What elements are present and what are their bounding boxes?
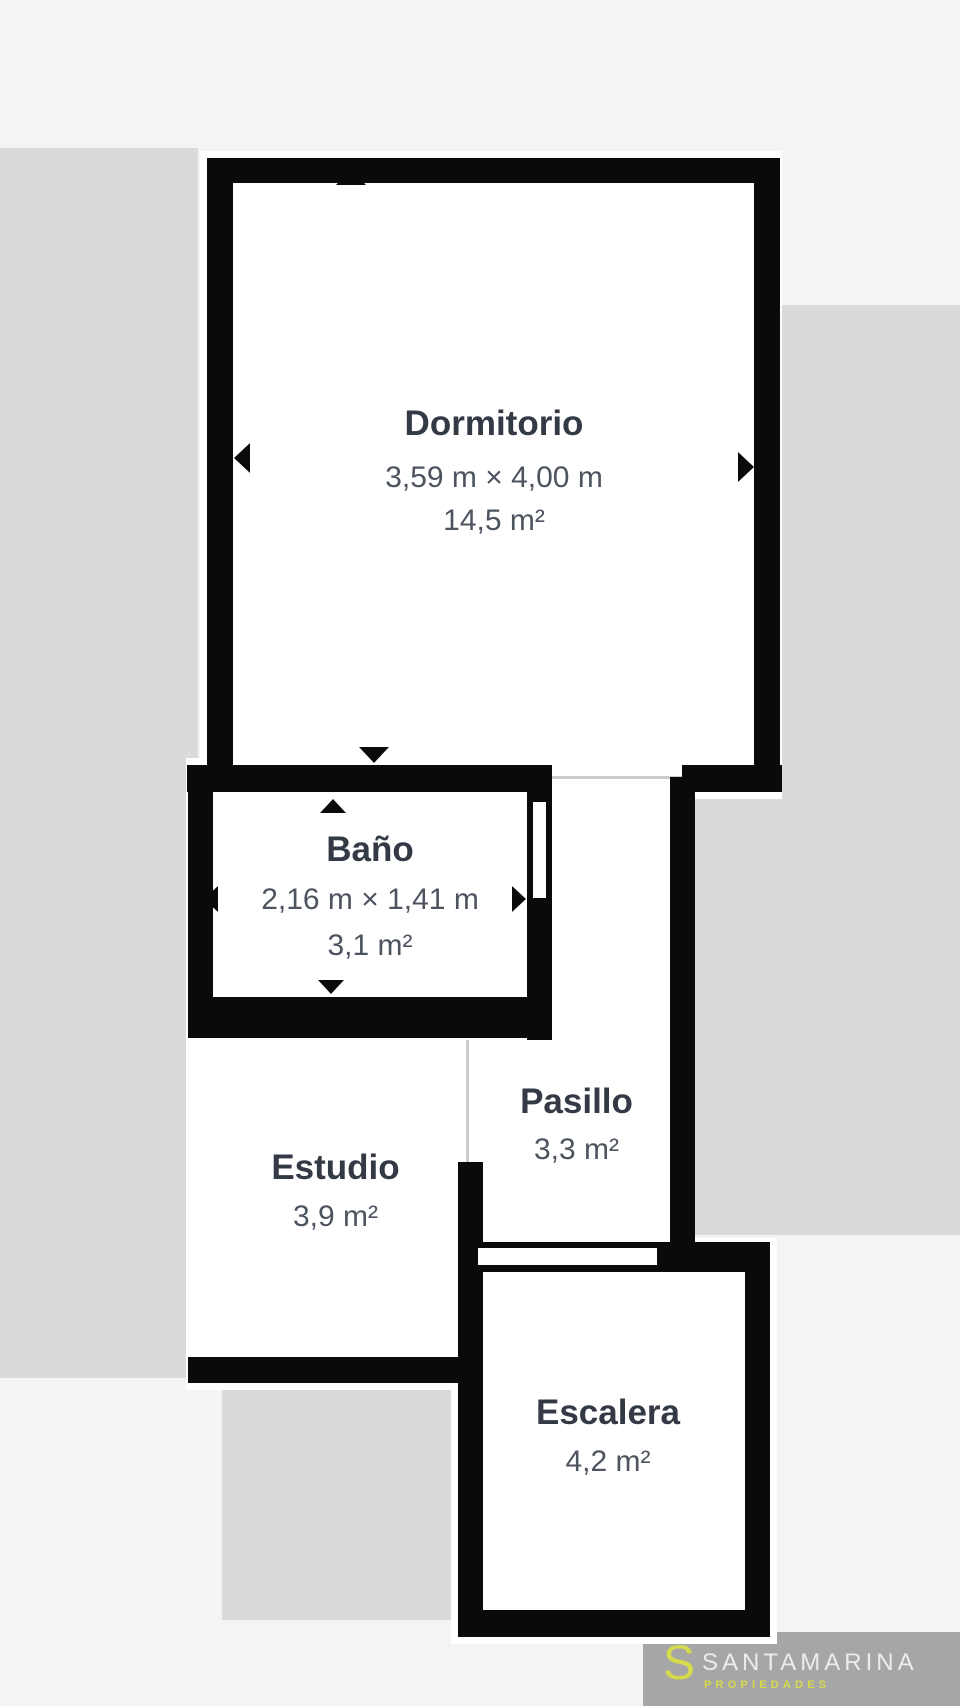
wall-escalera-bottom	[458, 1610, 770, 1637]
estudio-room-area	[186, 990, 490, 1390]
backdrop-right-upper-block	[780, 305, 960, 790]
wall-pasillo-right	[670, 777, 695, 1243]
room-area-pasillo: 3,3 m²	[483, 1132, 670, 1168]
room-dimensions-bano: 2,16 m × 1,41 m	[213, 882, 527, 918]
estudio-door-opening-line	[466, 1040, 469, 1162]
room-name-dormitorio: Dormitorio	[233, 404, 755, 444]
room-name-bano: Baño	[213, 830, 527, 870]
bano-door-slot	[533, 802, 546, 898]
brand-company-name: SANTAMARINA	[702, 1649, 918, 1677]
wall-escalera-right	[745, 1243, 770, 1637]
dormitorio-door-opening-line	[537, 776, 682, 779]
dormitorio-arrow-up-icon	[336, 169, 366, 185]
dormitorio-arrow-down-icon	[359, 747, 389, 763]
backdrop-right-lower-block	[695, 790, 960, 1235]
bano-arrow-up-icon	[320, 799, 346, 813]
wall-dormitorio-bottom-right	[682, 765, 782, 792]
room-area-escalera: 4,2 m²	[479, 1444, 737, 1480]
wall-dormitorio-left	[207, 158, 233, 792]
floorplan-canvas: S SANTAMARINA PROPIEDADES Dormitorio 3,5…	[0, 0, 960, 1706]
bano-arrow-down-icon	[318, 980, 344, 994]
wall-estudio-bottom	[188, 1357, 483, 1383]
escalera-room-area	[451, 1238, 777, 1644]
wall-dormitorio-bottom-left	[187, 765, 537, 792]
room-area-estudio: 3,9 m²	[213, 1199, 458, 1235]
backdrop-below-estudio-block	[222, 1385, 455, 1620]
escalera-door-slot	[478, 1248, 657, 1265]
room-name-estudio: Estudio	[213, 1148, 458, 1188]
brand-tagline: PROPIEDADES	[704, 1678, 830, 1692]
room-name-pasillo: Pasillo	[483, 1082, 670, 1122]
room-dimensions-dormitorio: 3,59 m × 4,00 m	[233, 460, 755, 496]
room-area-bano: 3,1 m²	[213, 928, 527, 964]
backdrop-left-block	[0, 148, 198, 1378]
wall-dormitorio-right	[754, 158, 780, 792]
wall-dormitorio-top	[207, 158, 780, 183]
room-area-dormitorio: 14,5 m²	[233, 503, 755, 539]
room-name-escalera: Escalera	[479, 1393, 737, 1433]
brand-initial-letter: S	[663, 1638, 695, 1690]
wall-bano-bottom	[188, 997, 552, 1038]
